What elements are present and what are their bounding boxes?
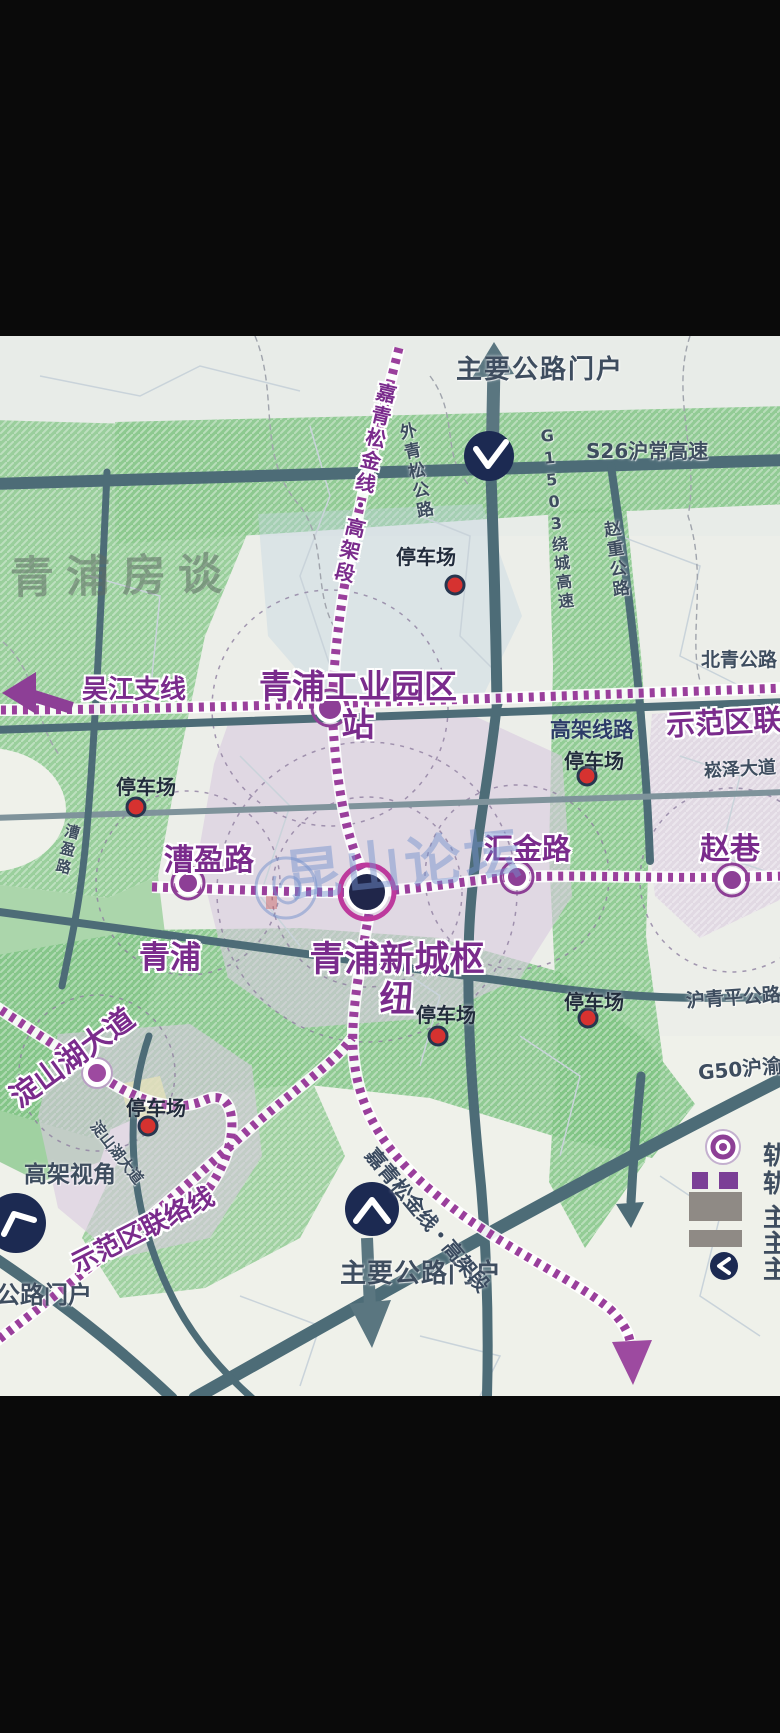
legend-road-icon [689,1230,742,1247]
transit-planning-map: 主要公路门户 S26沪常高速 嘉青松金线・高架段 外青松公路 G1503绕城高速… [0,336,780,1396]
legend-text-cut-1: 轨 [763,1142,780,1171]
arrow-elevated-head [616,1202,644,1228]
phone-screenshot: 主要公路门户 S26沪常高速 嘉青松金线・高架段 外青松公路 G1503绕城高速… [0,0,780,1733]
road-label-beiqing: 北青公路 [701,650,777,672]
arrow-rail-south-head [612,1340,652,1385]
parking-label-4: 停车场 [416,1004,476,1027]
parking-label-2: 停车场 [116,776,176,799]
area-label-qingpu: 青浦 [139,941,201,977]
arrow-bottom-head [349,1300,391,1348]
legend-text-cut-5: 主 [763,1256,780,1285]
gateway-label-top: 主要公路门户 [456,356,624,386]
parking-label-3: 停车场 [564,750,624,773]
parking-dot-4 [429,1027,447,1045]
note-label-elevated-view: 高架视角 [24,1162,116,1188]
station-label-caoying: 漕盈路 [164,844,254,879]
station-label-zhaoxiang: 赵巷 [700,833,760,868]
legend-hub-icon-base [689,1192,742,1221]
rail-label-lianluo-right: 示范区联络线 [665,700,780,742]
legend-badge-icon [710,1252,738,1280]
road-label-s26: S26沪常高速 [586,440,708,463]
watermark-brand: 青浦房谈 [10,550,235,604]
station-label-industrial-park: 青浦工业园区站 [250,668,466,744]
parking-label-5: 停车场 [564,991,624,1014]
map-legend [689,1130,742,1280]
legend-hub-icon-right-block [719,1172,738,1189]
legend-text-cut-2: 轨 [763,1170,780,1199]
gateway-label-bottom-left: 主要公路门户 [0,1282,92,1310]
parking-label-1: 停车场 [396,546,456,569]
road-g1503-north [491,476,497,704]
station-marker-zhaoxiang [716,864,748,896]
rail-label-wujiang: 吴江支线 [82,676,186,706]
badge-top-circle [464,431,514,481]
parking-dot-1 [446,576,464,594]
legend-hub-icon-left-block [692,1172,708,1189]
note-label-elevated-line: 高架线路 [550,718,634,742]
road-label-songze: 崧泽大道 [704,758,777,782]
parking-label-6: 停车场 [126,1097,186,1120]
parking-dot-2 [127,798,145,816]
